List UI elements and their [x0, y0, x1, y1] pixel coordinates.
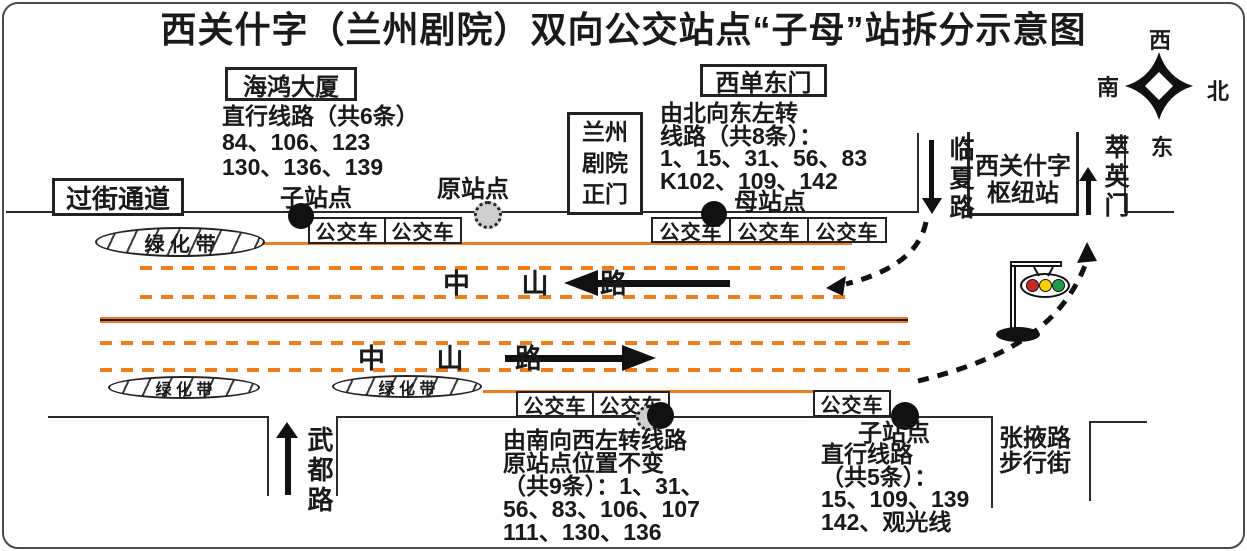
greenbelt-label: 绿 化 带: [379, 375, 436, 399]
compass-east-label: 东: [1151, 136, 1173, 160]
traffic-light-yellow-icon: [1039, 279, 1052, 292]
bus-bay-label: 公交车: [821, 389, 884, 418]
mother-station-dot: [701, 201, 727, 227]
traffic-light-bar: [1010, 261, 1062, 267]
xidan-east-gate-box: 西单东门: [700, 64, 827, 97]
bus-bay-box: 公交车: [384, 217, 462, 244]
greenbelt-upper: 绿 化 带: [95, 227, 265, 257]
note-line: 56、83、106、107: [503, 498, 704, 521]
theater-label-line: 兰州: [582, 117, 628, 148]
note-line: 130、136、139: [222, 155, 419, 181]
original-station-label-top: 原站点: [437, 177, 509, 203]
wudu-road-edge-west: [267, 416, 269, 496]
hub-label-line: 西关什字: [975, 153, 1071, 180]
crossing-label: 过街通道: [66, 179, 170, 216]
note-line: 原站点位置不变: [503, 452, 704, 475]
note-line: 142、观光线: [821, 511, 969, 534]
sidewalk-line-bottom-right: [1089, 421, 1147, 423]
bus-bay-box: 公交车: [516, 391, 594, 417]
note-line: 84、106、123: [222, 130, 419, 156]
north-turn-routes-note: 由北向东左转 线路（共8条）： 1、15、31、56、83 K102、109、1…: [660, 102, 867, 192]
straight-south-routes-note: 直行线路 （共5条）： 15、109、139 142、观光线: [821, 443, 969, 533]
bus-bay-box: 公交车: [813, 390, 891, 417]
note-line: 111、130、136: [503, 521, 704, 544]
bus-bay-label: 公交车: [392, 216, 455, 245]
haihong-routes-note: 直行线路（共6条） 84、106、123 130、136、139: [222, 104, 419, 181]
zhongshan-road-label-upper: 中 山 路: [443, 270, 649, 300]
traffic-light-pole: [1010, 265, 1016, 333]
greenbelt-lower-left: 绿 化 带: [108, 376, 260, 399]
theater-label-line: 剧院: [582, 148, 628, 179]
compass-west-label: 西: [1149, 29, 1171, 53]
sidewalk-line-bottom-left: [48, 416, 268, 418]
mother-station-label: 母站点: [734, 190, 806, 216]
traffic-light-base: [996, 327, 1040, 342]
lanzhou-theater-box: 兰州 剧院 正门: [567, 112, 643, 215]
south-turn-routes-note: 由南向西左转线路 原站点位置不变 （共9条）：1、31、 56、83、106、1…: [503, 429, 704, 544]
zhangye-street-edge-east: [1089, 421, 1091, 501]
eastbound-arrow-icon: [622, 345, 656, 371]
note-line: （共9条）：1、31、: [503, 475, 704, 498]
note-line: 15、109、139: [821, 488, 969, 511]
bus-station-diagram: 西关什字（兰州剧院）双向公交站点“子母”站拆分示意图 绿 化 带 绿 化 带 绿…: [0, 0, 1247, 551]
compass-north-label: 北: [1207, 80, 1229, 104]
bus-bay-box: 公交车: [807, 217, 887, 243]
greenbelt-lower-mid: 绿 化 带: [332, 375, 482, 398]
note-line: 由南向西左转线路: [503, 429, 704, 452]
haihong-building-box: 海鸿大厦: [225, 67, 357, 101]
zhangye-label-line: 步行街: [999, 451, 1071, 476]
median-line: [100, 317, 908, 323]
linxia-arrow-shaft: [929, 140, 934, 200]
bus-bay-label: 公交车: [524, 390, 587, 419]
wudu-road-label: 武都路: [301, 426, 338, 516]
cuiying-up-arrow-icon: [1079, 167, 1097, 181]
bus-bay-label: 公交车: [816, 216, 879, 245]
hub-station-box: 西关什字 枢纽站: [967, 132, 1079, 216]
traffic-light-red-icon: [1026, 279, 1039, 292]
bus-bay-box: 公交车: [308, 217, 386, 244]
note-line: 线路（共8条）：: [660, 125, 867, 148]
sub-station-label-bottom: 子站点: [858, 421, 930, 447]
zhongshan-road-label-lower: 中 山 路: [358, 345, 564, 375]
note-line: 1、15、31、56、83: [660, 147, 867, 170]
page-title: 西关什字（兰州剧院）双向公交站点“子母”站拆分示意图: [0, 10, 1247, 50]
bus-bay-label: 公交车: [316, 216, 379, 245]
greenbelt-label: 绿 化 带: [144, 228, 215, 257]
xidan-label: 西单东门: [716, 63, 812, 98]
bus-bay-box: 公交车: [729, 217, 809, 243]
note-line: 由北向东左转: [660, 102, 867, 125]
linxia-road-label: 临夏路: [942, 136, 978, 223]
original-station-dot-top: [474, 201, 502, 229]
cuiying-gate-label: 萃英门: [1097, 134, 1133, 221]
haihong-label: 海鸿大厦: [243, 67, 339, 102]
zhangye-street-edge-west: [991, 416, 993, 508]
sub-station-label-top: 子站点: [280, 186, 352, 212]
wudu-up-arrow-icon: [276, 422, 298, 438]
zhangye-label-line: 张掖路: [999, 426, 1071, 451]
street-crossing-box: 过街通道: [52, 178, 184, 216]
bus-bay-label: 公交车: [738, 216, 801, 245]
compass-south-label: 南: [1097, 76, 1119, 100]
linxia-down-arrow-icon: [922, 198, 942, 214]
hub-label-line: 枢纽站: [975, 180, 1071, 207]
cross-street-edge-west: [917, 133, 919, 213]
note-line: 直行线路（共6条）: [222, 104, 419, 130]
traffic-light-green-icon: [1052, 279, 1065, 292]
note-line: （共5条）：: [821, 466, 969, 489]
zhangye-street-label: 张掖路 步行街: [999, 426, 1071, 476]
cuiying-arrow-shaft: [1086, 180, 1091, 215]
greenbelt-label: 绿 化 带: [156, 376, 213, 400]
wudu-arrow-shaft: [285, 437, 291, 495]
theater-label-line: 正门: [582, 179, 628, 210]
mother-station-dot-bottom: [647, 402, 674, 429]
